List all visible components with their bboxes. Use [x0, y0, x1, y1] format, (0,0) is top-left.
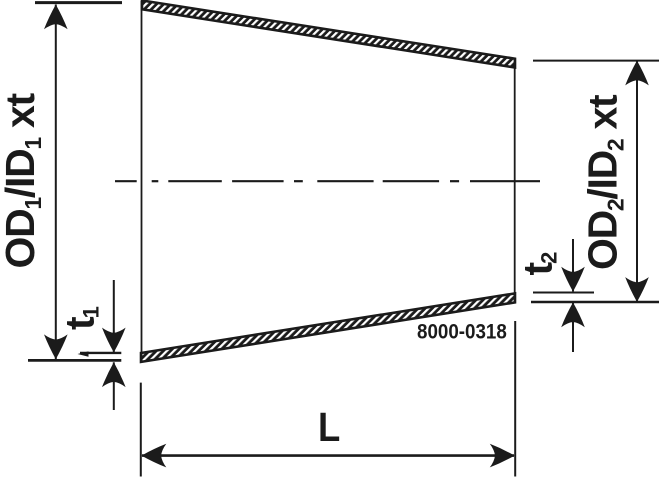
svg-text:OD1/ID1 xt: OD1/ID1 xt	[0, 93, 46, 269]
svg-text:OD2/ID2 xt: OD2/ID2 xt	[580, 94, 629, 270]
svg-text:L: L	[318, 405, 340, 450]
svg-text:8000-0318: 8000-0318	[417, 321, 507, 344]
